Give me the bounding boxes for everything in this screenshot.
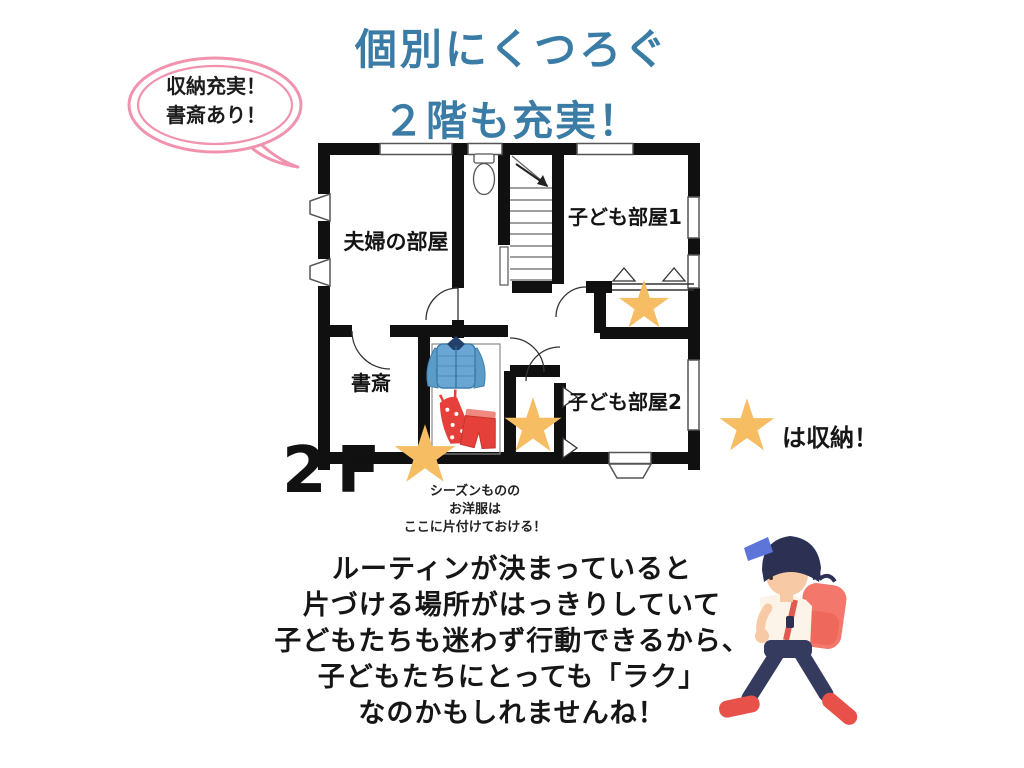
closet-caption-line-2: お洋服は: [383, 501, 567, 519]
room-label-couple: 夫婦の部屋: [336, 226, 456, 256]
bubble-line-2: 書斎あり！: [136, 101, 296, 130]
closet-caption-line-3: ここに片付けておける！: [383, 519, 567, 537]
legend-star-icon: [720, 398, 775, 450]
door-panel: [500, 247, 508, 285]
bottom-line-3: 子どもたちも迷わず行動できるから、: [0, 624, 1024, 660]
title-line-1: 個別にくつろぐ: [0, 16, 1024, 77]
room-label-kids2: 子ども部屋2: [560, 386, 690, 415]
speech-bubble: 収納充実！ 書斎あり！: [136, 72, 296, 130]
room-label-kids1: 子ども部屋1: [560, 201, 690, 230]
closet-caption-line-1: シーズンものの: [383, 483, 567, 501]
closet-caption: シーズンものの お洋服は ここに片付けておける！: [383, 483, 567, 537]
star-icon: [619, 280, 669, 328]
stairs-arrow-icon: [516, 164, 548, 187]
toilet-icon: [474, 154, 495, 195]
legend-label: は収納！: [782, 418, 878, 453]
bottom-line-5: なのかもしれませんね！: [0, 696, 1024, 732]
sliding-door-track: [563, 268, 694, 458]
shorts-illustration: [460, 408, 499, 449]
floor-label: 2F: [282, 434, 390, 508]
bottom-line-2: 片づける場所がはっきりしていて: [0, 588, 1024, 624]
bottom-line-1: ルーティンが決まっていると: [0, 552, 1024, 588]
bubble-line-1: 収納充実！: [136, 72, 296, 101]
infographic-page: 個別にくつろぐ ２階も充実！ 収納充実！ 書斎あり！ 夫婦の部屋 子ども部屋1 …: [0, 0, 1024, 768]
room-label-study: 書斎: [342, 367, 400, 396]
bottom-line-4: 子どもたちにとっても「ラク」: [0, 660, 1024, 696]
bottom-paragraph: ルーティンが決まっていると 片づける場所がはっきりしていて 子どもたちも迷わず行…: [0, 552, 1024, 732]
